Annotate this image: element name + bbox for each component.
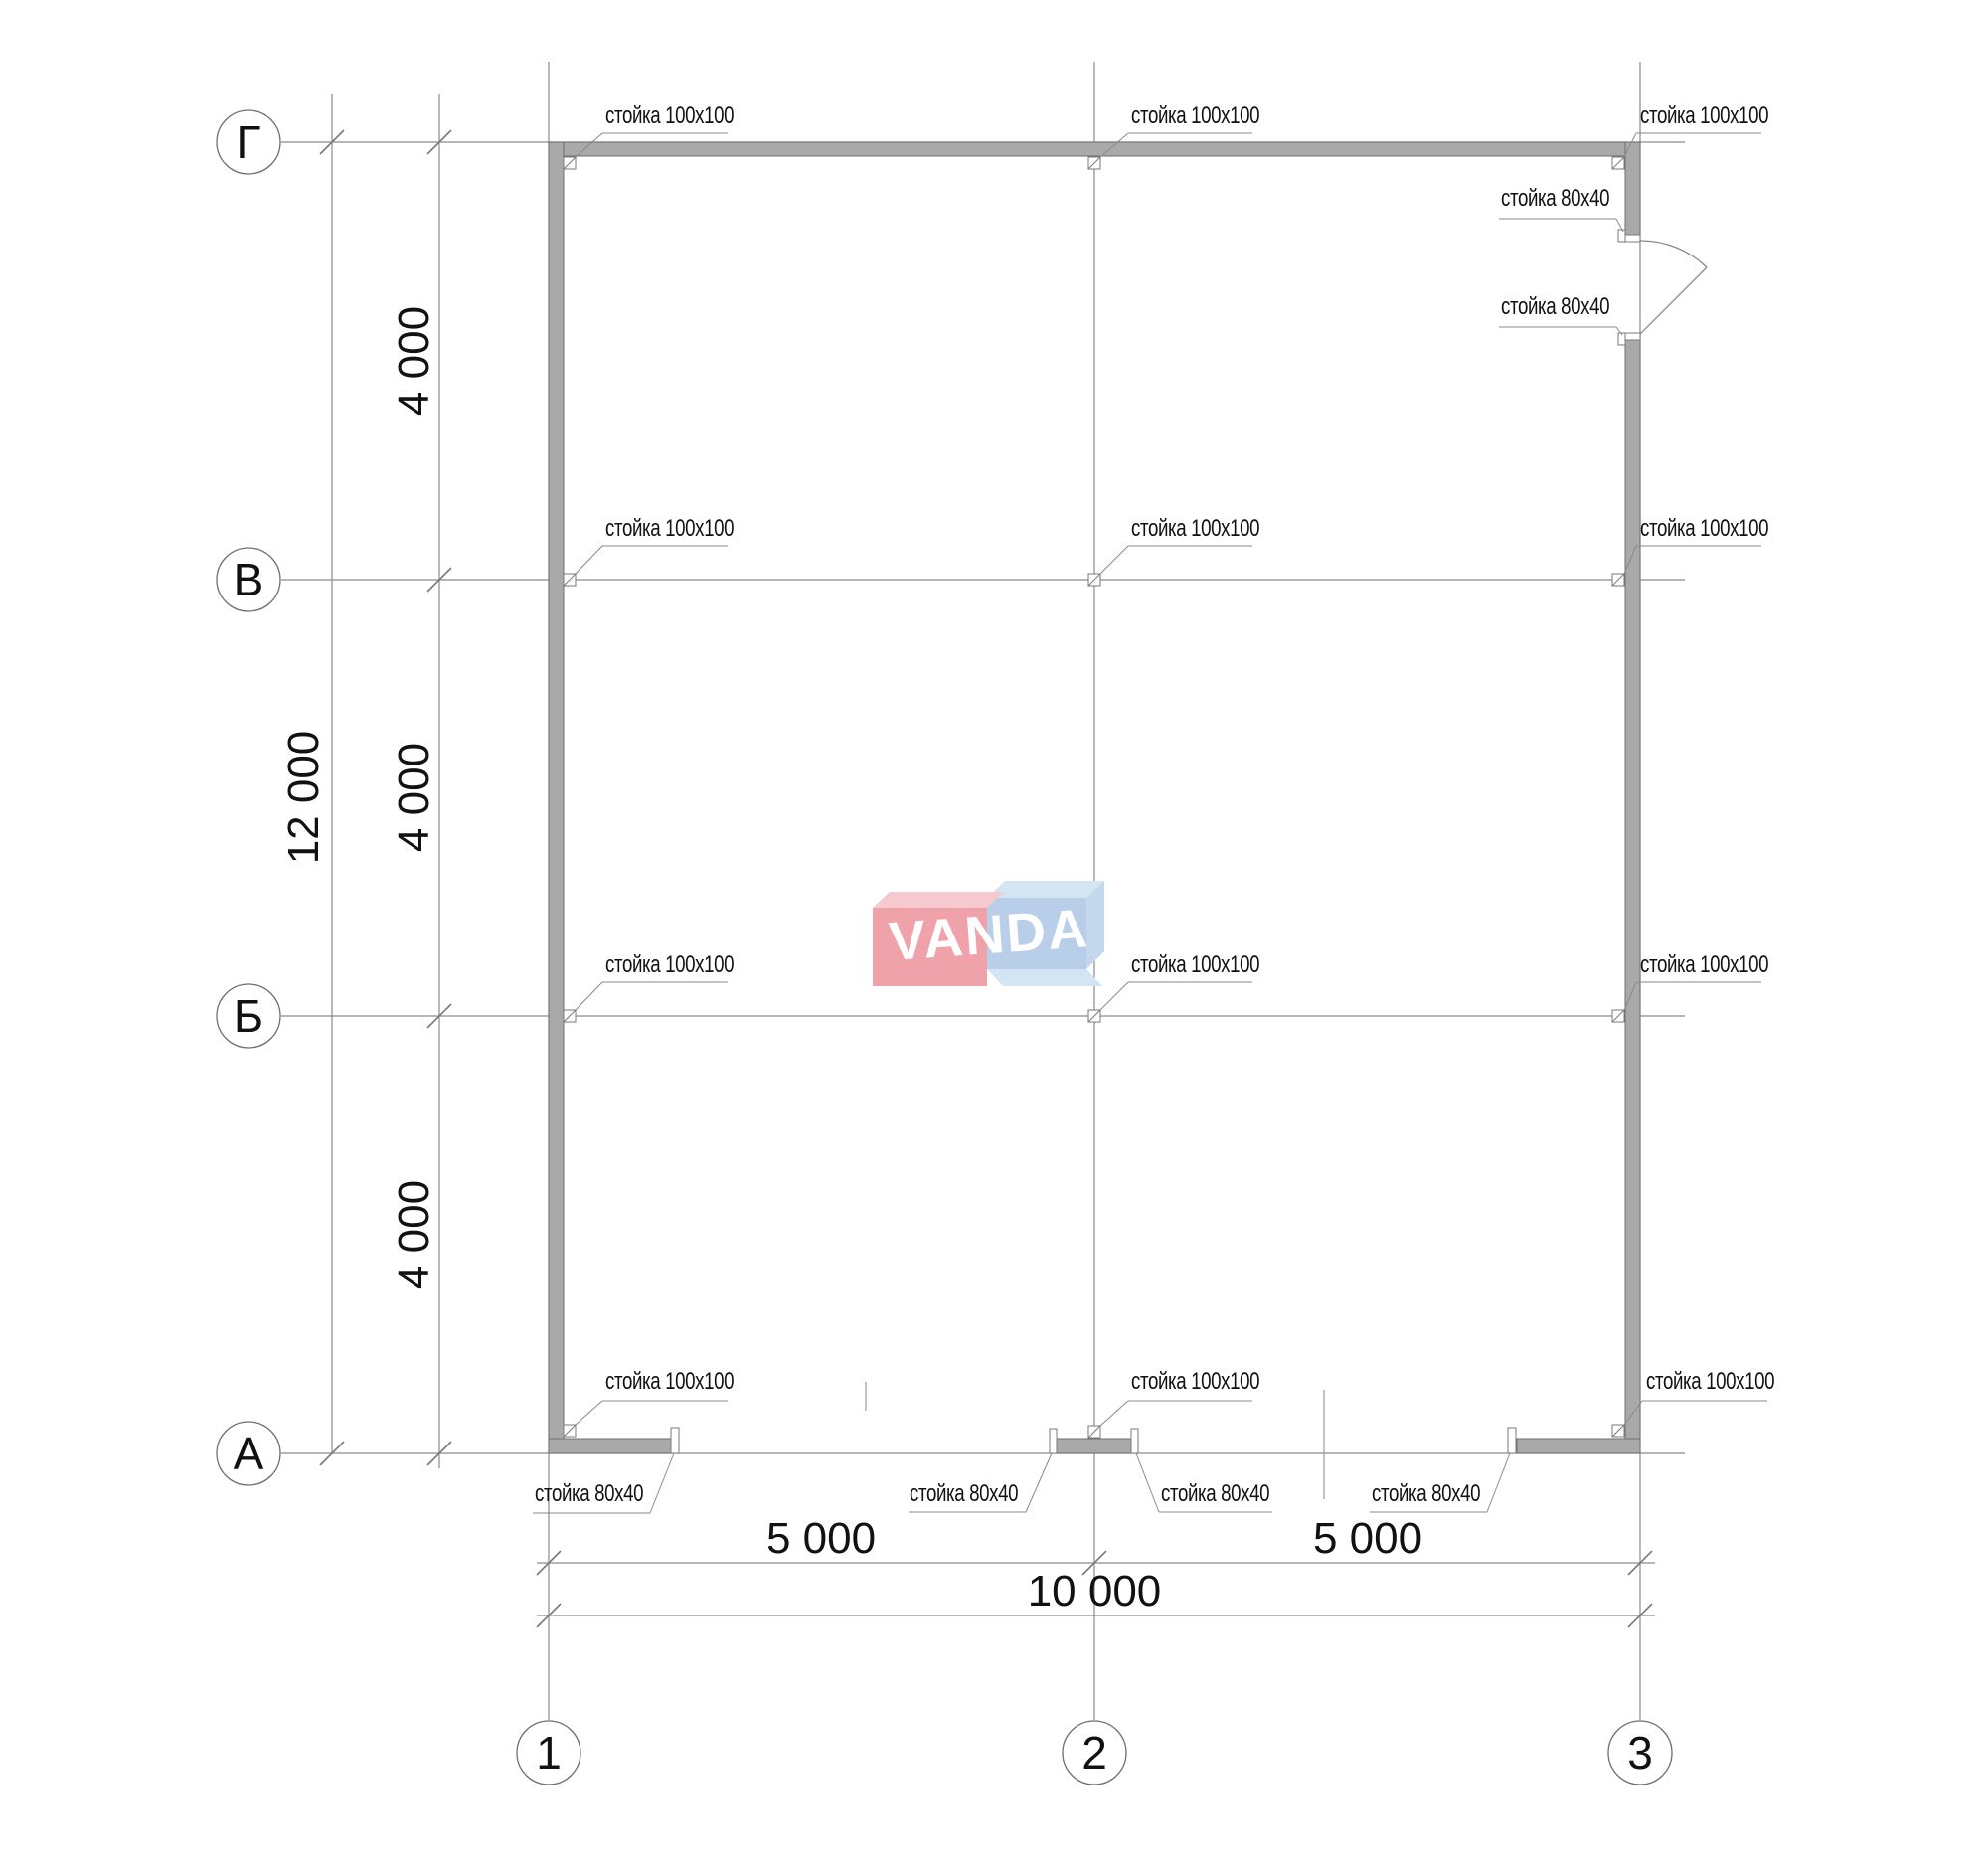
dim-row-span-1: 4 000 [393, 261, 436, 460]
post-100-label: стойка 100x100 [605, 951, 734, 979]
door-swing [1640, 241, 1707, 334]
dim-row-span-3: 4 000 [393, 1135, 436, 1334]
axis-row-label-g: Г [199, 118, 298, 166]
grid-axes [281, 62, 1685, 1720]
post-80-label: стойка 80x40 [1161, 1480, 1269, 1508]
axis-row-label-b: Б [199, 992, 298, 1040]
post-100-label: стойка 100x100 [605, 515, 734, 543]
dim-col-total: 10 000 [995, 1570, 1194, 1614]
post-80-label: стойка 80x40 [910, 1480, 1018, 1508]
post-80-label: стойка 80x40 [1501, 293, 1609, 321]
post-100-label: стойка 100x100 [605, 102, 734, 130]
post-100-label: стойка 100x100 [1640, 515, 1768, 543]
leader-lines [533, 133, 1767, 1513]
floor-plan: Г В Б А 1 2 3 4 000 4 000 4 000 12 000 5… [0, 0, 1988, 1870]
post-100-label: стойка 100x100 [1131, 951, 1259, 979]
dimension-ticks [320, 130, 1652, 1627]
post-100-label: стойка 100x100 [1640, 951, 1768, 979]
axis-col-label-3: 3 [1590, 1729, 1690, 1777]
dim-col-span-2: 5 000 [1268, 1517, 1467, 1561]
door-jambs [1618, 230, 1640, 345]
dim-row-span-2: 4 000 [393, 698, 436, 897]
post-100-label: стойка 100x100 [1131, 102, 1259, 130]
post-100-label: стойка 100x100 [1640, 102, 1768, 130]
post-80-label: стойка 80x40 [1501, 185, 1609, 213]
post-100-label: стойка 100x100 [605, 1368, 734, 1396]
dim-row-total: 12 000 [282, 698, 326, 897]
post-80-label: стойка 80x40 [1372, 1480, 1480, 1508]
dim-col-span-1: 5 000 [722, 1517, 920, 1561]
post-80-label: стойка 80x40 [535, 1480, 643, 1508]
post-100-label: стойка 100x100 [1131, 515, 1259, 543]
post-100-label: стойка 100x100 [1646, 1368, 1774, 1396]
axis-row-label-a: А [199, 1430, 298, 1477]
axis-col-label-1: 1 [499, 1729, 598, 1777]
post-100-label: стойка 100x100 [1131, 1368, 1259, 1396]
axis-row-label-v: В [199, 556, 298, 603]
axis-col-label-2: 2 [1045, 1729, 1144, 1777]
dimension-lines [332, 94, 1655, 1615]
